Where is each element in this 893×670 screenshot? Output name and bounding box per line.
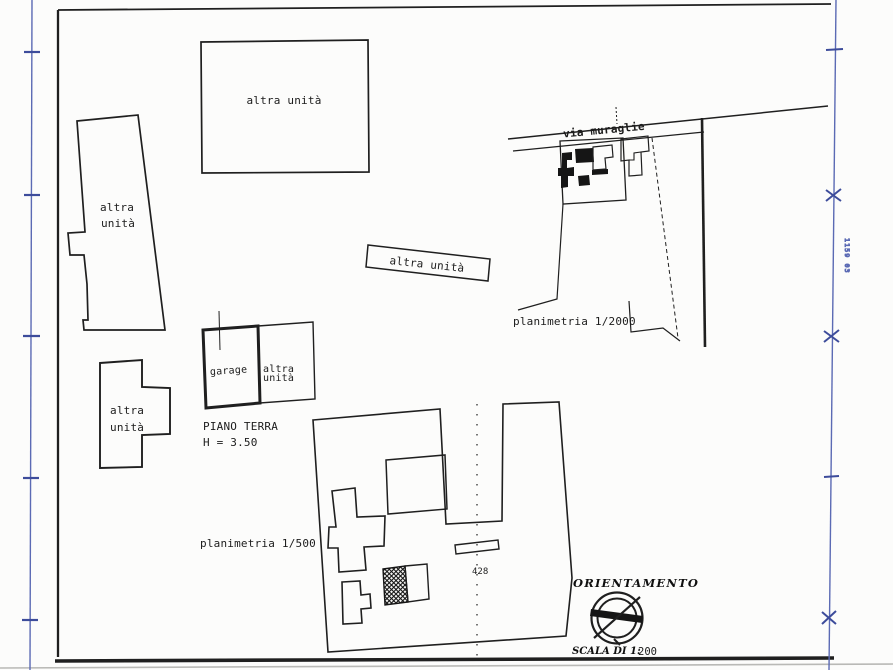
plan-drawing: 1159 03 altra unità altra unità altra un… xyxy=(0,0,893,670)
frame-bottom xyxy=(55,658,834,661)
parcel-number-label: 428 xyxy=(472,567,488,577)
plan2000-black-building-main xyxy=(575,148,594,163)
plan500-parcel-boundary xyxy=(313,402,572,652)
plan2000-boundary-left xyxy=(518,204,563,310)
scale-value: 200 xyxy=(638,646,657,658)
unit-left-building: altra unità xyxy=(68,115,165,330)
unit-lower-left-label-1: altra xyxy=(110,404,144,417)
plan2000-caption: planimetria 1/2000 xyxy=(513,315,636,328)
floor-label-1: PIANO TERRA xyxy=(203,420,278,433)
scale-label: SCALA DI 1: xyxy=(572,646,641,657)
plan2000-boundary-dashed xyxy=(652,138,678,338)
plan2000-boundary-bottom xyxy=(629,301,680,341)
plan500-strip-structure xyxy=(455,540,499,554)
plan-2000: via muraglie planimetria 1/2000 xyxy=(508,106,828,347)
ruler-right-ticks xyxy=(822,49,843,624)
orientation-title: ORIENTAMENTO xyxy=(573,576,699,590)
orientation-block: ORIENTAMENTO SCALA DI 1: 200 xyxy=(572,576,699,658)
plan2000-right-building xyxy=(621,136,649,176)
unit-strip-label: altra unità xyxy=(389,254,465,275)
frame-top xyxy=(58,4,831,10)
unit-left-label-1: altra xyxy=(100,201,134,214)
plan500-hatched-building-annex xyxy=(405,564,429,602)
boundary-thick-line xyxy=(702,118,705,347)
scanned-plan-page: 1159 03 altra unità altra unità altra un… xyxy=(0,0,893,670)
plan2000-open-building xyxy=(593,145,613,170)
garage-axis-line xyxy=(219,311,220,350)
sheet-frame xyxy=(0,4,893,668)
unit-left-label-2: unità xyxy=(101,217,135,230)
plan500-caption: planimetria 1/500 xyxy=(200,537,316,550)
plan500-small-building xyxy=(342,581,371,624)
floor-label-2: H = 3.50 xyxy=(203,436,258,449)
plan2000-right-building-step xyxy=(629,152,641,160)
unit-top-building: altra unità xyxy=(201,40,369,173)
unit-beside-garage-label-2: unità xyxy=(263,372,294,384)
unit-strip-building: altra unità xyxy=(366,245,490,281)
plan500-inner-rect xyxy=(386,455,447,514)
plan2000-black-building-small xyxy=(578,175,590,186)
ruler-left xyxy=(22,0,40,670)
compass-icon xyxy=(590,593,643,646)
frame-bottom-shadow xyxy=(0,664,893,668)
garage-block: garage altra unità PIANO TERRA H = 3.50 xyxy=(203,311,315,449)
plan500-cross-building xyxy=(328,488,385,572)
ruler-right: 1159 03 xyxy=(822,0,851,670)
unit-beside-garage-outline xyxy=(258,322,315,403)
garage-label: garage xyxy=(210,364,248,378)
plan500-hatched-building xyxy=(383,566,408,605)
unit-top-label: altra unità xyxy=(246,94,321,107)
road-line-upper xyxy=(508,106,828,139)
unit-lower-left-building: altra unità xyxy=(100,360,170,468)
edge-note-text: 1159 03 xyxy=(843,238,851,274)
unit-lower-left-label-2: unità xyxy=(110,421,144,434)
